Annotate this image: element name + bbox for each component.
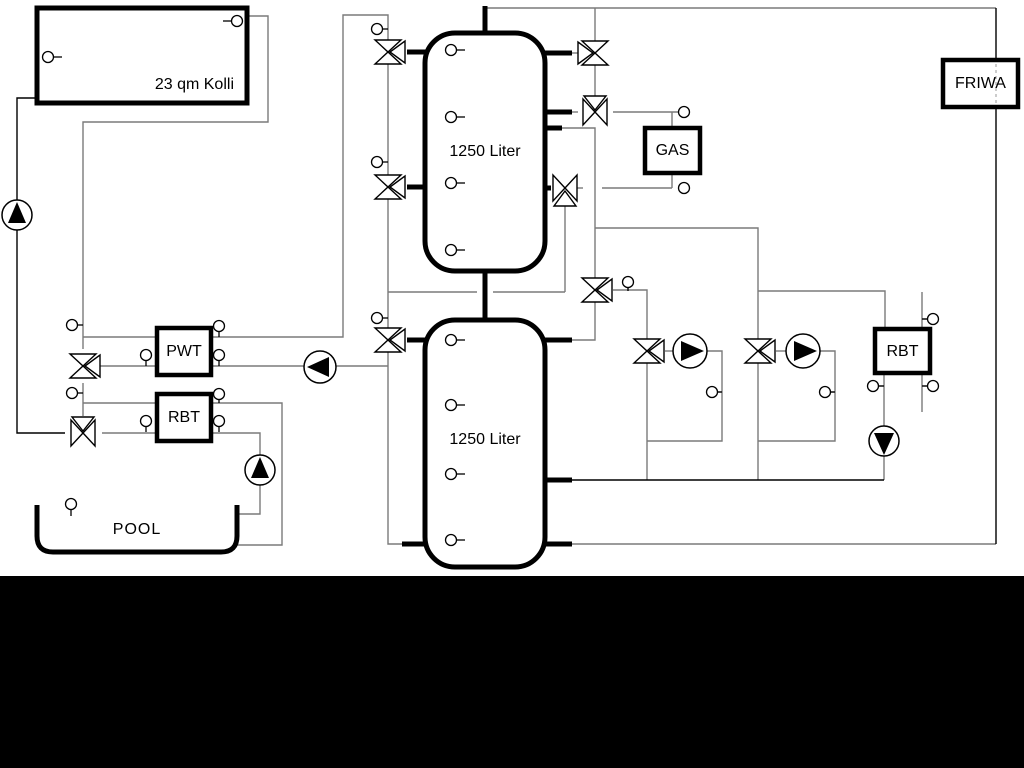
pump-pwt — [304, 351, 336, 383]
three-way-valve-heating-supply — [582, 278, 612, 302]
sensor-icon — [372, 157, 389, 168]
gas-label: GAS — [645, 143, 700, 159]
buffer-tank-bottom-label: 1250 Liter — [425, 432, 545, 448]
pump-pool — [245, 455, 275, 485]
three-way-mixing-valve-circuit2 — [745, 339, 775, 363]
sensor-icon — [623, 277, 634, 292]
sensor-icon — [922, 314, 939, 325]
sensor-icon — [868, 381, 885, 392]
pool-label: POOL — [77, 522, 197, 538]
three-way-valve-pwt — [70, 354, 100, 378]
pump-circuit2 — [786, 334, 820, 368]
three-way-mixing-valve-circuit1 — [634, 339, 664, 363]
sensor-icon — [67, 388, 84, 399]
sensor-icon — [67, 320, 84, 331]
sensor-icon — [141, 416, 152, 433]
three-way-valve-tank2-left — [375, 328, 405, 352]
sensor-icon — [141, 350, 152, 367]
pump-rbt-right — [869, 426, 899, 456]
buffer-tank-top-label: 1250 Liter — [425, 144, 545, 160]
sensor-icon — [372, 313, 389, 324]
sensor-icon — [372, 24, 389, 35]
schematic-page: 23 qm Kolli 1250 Liter 1250 Liter PWT RB… — [0, 0, 1024, 768]
three-way-valve-rbt-pool — [71, 417, 95, 446]
bottom-black-band — [0, 576, 1024, 768]
three-way-valve-tank1-left-bottom — [375, 175, 405, 199]
collector-label: 23 qm Kolli — [110, 77, 234, 93]
rbt-pool-label: RBT — [157, 410, 211, 426]
sensor-icon — [679, 107, 690, 118]
sensor-icon — [922, 381, 939, 392]
sensor-icon — [820, 387, 836, 398]
pwt-label: PWT — [157, 344, 211, 360]
sensor-icon — [214, 416, 225, 433]
sensor-icon — [214, 321, 225, 338]
three-way-valve-tank1-left-top — [375, 40, 405, 64]
sensor-icon — [214, 350, 225, 367]
pump-circuit1 — [673, 334, 707, 368]
three-way-valve-gas-supply — [583, 96, 607, 125]
sensor-icon — [679, 183, 690, 194]
sensor-icon — [214, 389, 225, 404]
three-way-valve-tank1-right-top — [578, 41, 608, 65]
sensor-icon — [707, 387, 723, 398]
three-way-valve-gas-return — [553, 175, 577, 206]
rbt-right-label: RBT — [875, 344, 930, 360]
pump-solar — [2, 200, 32, 230]
sensor-icon — [66, 499, 77, 517]
friwa-label: FRIWA — [943, 76, 1018, 92]
